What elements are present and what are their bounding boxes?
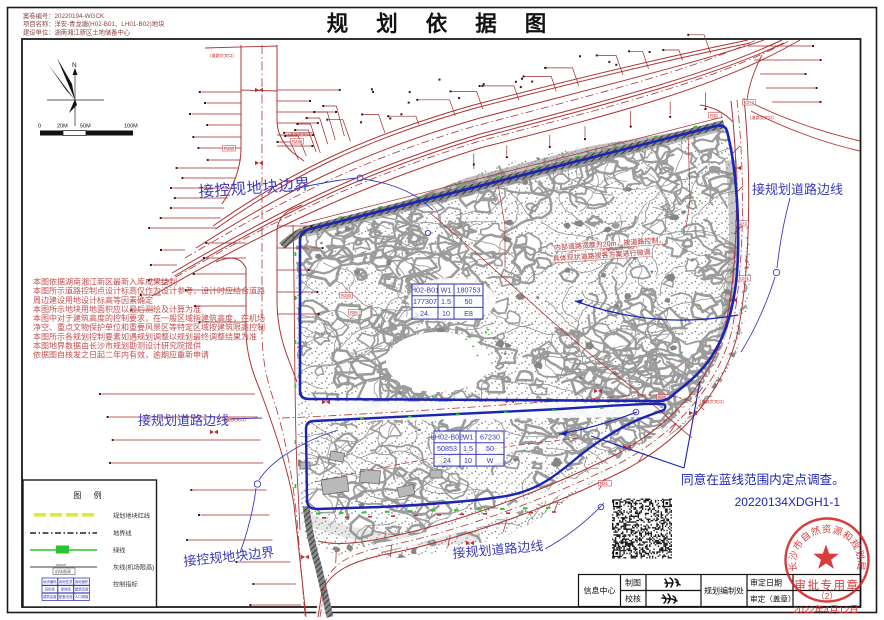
svg-text:接规划道路边线: 接规划道路边线 xyxy=(752,182,843,197)
svg-text:50M: 50M xyxy=(80,124,91,130)
svg-text:W1: W1 xyxy=(463,432,474,441)
svg-text:人口规模: 人口规模 xyxy=(75,594,89,599)
svg-text:本图依据湖南湘江新区最新入库成果绘制: 本图依据湖南湘江新区最新入库成果绘制 xyxy=(33,277,177,287)
svg-text:规 划 依 据 图: 规 划 依 据 图 xyxy=(327,11,557,36)
svg-text:地块编码: 地块编码 xyxy=(43,579,57,584)
svg-text:W: W xyxy=(487,456,494,465)
svg-text:(道路交叉口): (道路交叉口) xyxy=(288,131,312,138)
svg-text:接规划道路边线: 接规划道路边线 xyxy=(138,413,229,428)
svg-text:审定日期: 审定日期 xyxy=(750,578,782,588)
svg-text:2022年4月12日: 2022年4月12日 xyxy=(793,604,858,616)
svg-text:项目名称：洋安-青龙塘(H02-B01、LH01-B02)地: 项目名称：洋安-青龙塘(H02-B01、LH01-B02)地块 xyxy=(23,19,165,28)
svg-text:本图所示道路控制点设计标高仅作为设计参考，设计时应结合道路: 本图所示道路控制点设计标高仅作为设计参考，设计时应结合道路 xyxy=(33,286,265,296)
svg-text:用地面积: 用地面积 xyxy=(75,579,89,584)
svg-text:地界线: 地界线 xyxy=(113,530,132,538)
svg-text:建筑密度: 建筑密度 xyxy=(75,587,89,592)
svg-text:本图中对于建筑高度的控制要求，在一般区域指建筑高度，在机场: 本图中对于建筑高度的控制要求，在一般区域指建筑高度，在机场 xyxy=(33,313,265,323)
svg-text:制图: 制图 xyxy=(625,578,641,588)
svg-text:E8: E8 xyxy=(464,309,473,318)
svg-text:审批专用章: 审批专用章 xyxy=(795,578,860,592)
svg-text:控制指标: 控制指标 xyxy=(113,581,138,589)
svg-text:(道路交叉口): (道路交叉口) xyxy=(750,114,774,121)
svg-text:净空、重点文物保护单位和重要风景区等特定区域按建筑限高控制: 净空、重点文物保护单位和重要风景区等特定区域按建筑限高控制 xyxy=(33,322,265,332)
svg-text:R30: R30 xyxy=(710,113,718,118)
svg-text:案卷编号：20220194-WGCK: 案卷编号：20220194-WGCK xyxy=(23,11,105,20)
svg-text:0: 0 xyxy=(38,124,41,130)
svg-text:配套设施: 配套设施 xyxy=(59,594,73,599)
svg-text:100M: 100M xyxy=(124,124,138,130)
svg-text:67230: 67230 xyxy=(480,432,500,441)
svg-text:本图地界数据由长沙市规划勘测设计研究院提供: 本图地界数据由长沙市规划勘测设计研究院提供 xyxy=(33,341,201,351)
svg-text:信息中心: 信息中心 xyxy=(584,586,616,596)
svg-text:（2）: （2） xyxy=(816,591,838,601)
svg-text:(道路交叉口): (道路交叉口) xyxy=(700,398,724,405)
svg-text:用地性质: 用地性质 xyxy=(59,579,73,584)
svg-text:K2+1: K2+1 xyxy=(739,276,750,281)
svg-text:绿线: 绿线 xyxy=(113,547,125,555)
svg-text:R99: R99 xyxy=(350,310,358,315)
svg-text:50: 50 xyxy=(465,297,473,306)
svg-text:20220134XDGH1-1: 20220134XDGH1-1 xyxy=(735,495,841,509)
svg-text:K2+3: K2+3 xyxy=(744,100,755,105)
svg-text:规划编制处: 规划编制处 xyxy=(704,586,744,596)
svg-text:R25: R25 xyxy=(600,481,608,486)
svg-text:(道路交叉口): (道路交叉口) xyxy=(210,52,234,59)
svg-text:W1: W1 xyxy=(441,285,452,294)
svg-text:机场限高: 机场限高 xyxy=(55,568,71,574)
svg-text:本图所示各规划控制要素如遇规划调整以规划最终调整结果为准: 本图所示各规划控制要素如遇规划调整以规划最终调整结果为准 xyxy=(33,331,257,341)
svg-text:10: 10 xyxy=(442,309,450,318)
svg-text:N: N xyxy=(72,62,77,69)
svg-text:airport: airport xyxy=(56,563,66,567)
svg-text:图 例: 图 例 xyxy=(73,490,106,500)
svg-text:容积率: 容积率 xyxy=(45,587,56,592)
svg-text:1.5: 1.5 xyxy=(441,297,451,306)
svg-text:R250: R250 xyxy=(224,146,235,151)
svg-text:本图所示地块用地面积应以最后测绘及计算为准: 本图所示地块用地面积应以最后测绘及计算为准 xyxy=(33,304,201,314)
svg-text:177307: 177307 xyxy=(413,297,437,306)
svg-text:绿地率: 绿地率 xyxy=(61,587,72,592)
svg-text:建设单位：湖南湘江新区土地储备中心: 建设单位：湖南湘江新区土地储备中心 xyxy=(23,27,131,36)
svg-text:依据图自核发之日起二年内有效，逾期应重新申请: 依据图自核发之日起二年内有效，逾期应重新申请 xyxy=(33,350,209,360)
svg-text:24: 24 xyxy=(443,456,451,465)
svg-text:10: 10 xyxy=(464,456,472,465)
svg-text:灰线(机场限高): 灰线(机场限高) xyxy=(113,564,154,572)
svg-text:LH02-B02: LH02-B02 xyxy=(431,432,463,441)
svg-text:规划地块红线: 规划地块红线 xyxy=(113,512,150,520)
svg-text:24.: 24. xyxy=(420,309,430,318)
svg-text:同意在蓝线范围内定点调查。: 同意在蓝线范围内定点调查。 xyxy=(681,472,845,487)
svg-text:1.5: 1.5 xyxy=(463,444,473,453)
svg-text:50: 50 xyxy=(486,444,494,453)
svg-text:审定（盖章）: 审定（盖章） xyxy=(750,594,796,604)
svg-text:R250: R250 xyxy=(292,139,303,144)
svg-text:校核: 校核 xyxy=(625,594,641,604)
svg-text:周边建设用地设计标高等因素确定: 周边建设用地设计标高等因素确定 xyxy=(33,295,153,305)
svg-text:50853: 50853 xyxy=(437,444,457,453)
svg-text:建筑高度: 建筑高度 xyxy=(43,594,57,599)
svg-text:180753: 180753 xyxy=(457,285,481,294)
svg-text:R250: R250 xyxy=(341,293,352,298)
svg-text:20M: 20M xyxy=(57,124,68,130)
svg-text:H02-B01: H02-B01 xyxy=(411,285,439,294)
